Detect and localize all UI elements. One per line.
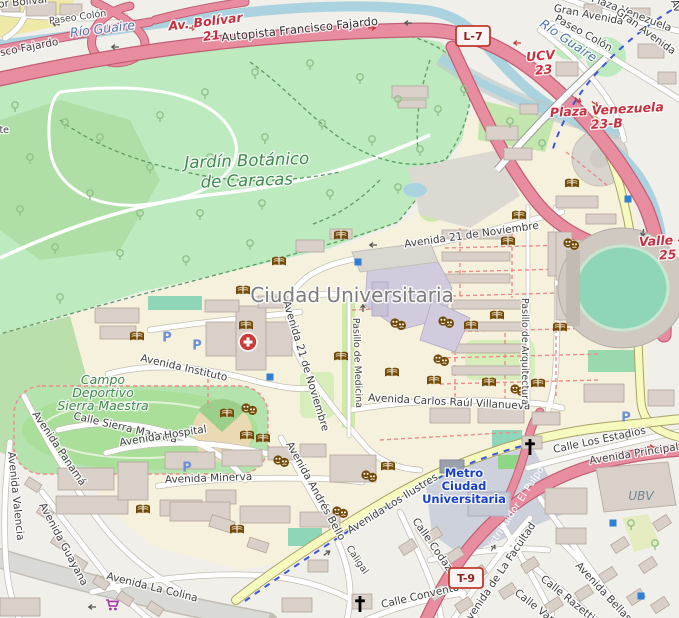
- road-shield-label: T-9: [457, 572, 475, 585]
- library-books-icon: [490, 311, 504, 320]
- map-label: Puente: [0, 125, 9, 136]
- library-books-icon: [531, 379, 545, 388]
- library-books-icon: [427, 376, 441, 385]
- library-books-icon: [239, 321, 253, 330]
- parking-icon: [192, 339, 202, 354]
- library-books-icon: [381, 462, 395, 471]
- viewpoint-square-icon: [625, 196, 632, 203]
- map-label: Sierra Maestra: [57, 398, 148, 413]
- library-books-icon: [136, 505, 150, 514]
- viewpoint-square-icon: [267, 374, 274, 381]
- library-books-icon: [272, 257, 286, 266]
- library-books-icon: [256, 434, 270, 443]
- library-books-icon: [482, 378, 496, 387]
- map-label: 25: [659, 247, 677, 263]
- library-books-icon: [130, 332, 144, 341]
- viewpoint-square-icon: [638, 593, 645, 600]
- library-books-icon: [565, 179, 579, 188]
- map-label: 23-B: [590, 115, 623, 132]
- map-label: de Caracas: [200, 169, 293, 191]
- library-books-icon: [334, 231, 348, 240]
- library-books-icon: [501, 237, 515, 246]
- map-canvas[interactable]: P: [0, 0, 679, 618]
- parking-icon: [621, 411, 631, 426]
- library-books-icon: [385, 368, 399, 377]
- library-books-icon: [553, 323, 567, 332]
- map-label: Pasillo de Arquitectura: [519, 298, 530, 405]
- library-books-icon: [464, 321, 478, 330]
- osm-map[interactable]: P: [0, 0, 679, 618]
- library-books-icon: [230, 525, 244, 534]
- road-shield: L-7: [456, 26, 490, 46]
- road-shield: T-9: [449, 568, 483, 588]
- library-books-icon: [240, 431, 254, 440]
- library-books-icon: [220, 409, 234, 418]
- viewpoint-square-icon: [355, 259, 362, 266]
- map-label: Universitaria: [422, 492, 506, 506]
- hospital-icon: [239, 333, 257, 351]
- library-books-icon: [236, 286, 250, 295]
- map-label: 23: [534, 61, 553, 77]
- map-label: Metro: [445, 466, 483, 480]
- map-label: UBV: [628, 489, 654, 503]
- viewpoint-square-icon: [610, 520, 617, 527]
- road-shield-label: L-7: [463, 30, 482, 43]
- parking-icon: [162, 331, 172, 346]
- library-books-icon: [512, 211, 526, 220]
- map-label: Ciudad: [442, 479, 487, 493]
- library-books-icon: [334, 352, 348, 361]
- map-label: 21: [202, 27, 221, 44]
